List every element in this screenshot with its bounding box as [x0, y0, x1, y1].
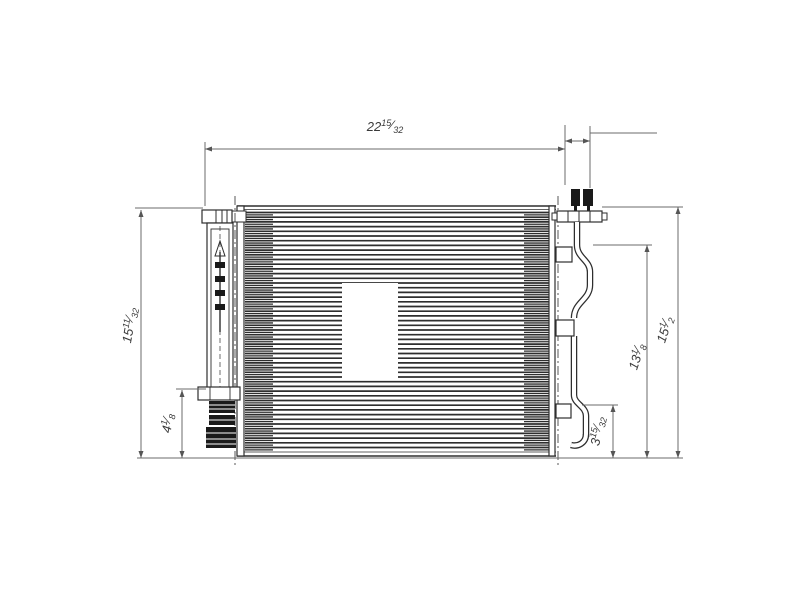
svg-text:315⁄32: 315⁄32: [586, 415, 609, 447]
dim-label-tube-height: 131⁄8: [625, 341, 649, 371]
core-right-end-plate: [549, 206, 555, 456]
svg-text:2215⁄32: 2215⁄32: [366, 118, 404, 135]
drier-bottom-fittings: [206, 401, 236, 448]
right-tube-assembly: [552, 189, 607, 446]
svg-text:1511⁄32: 1511⁄32: [118, 306, 141, 344]
drawing-canvas: 2215⁄32 1511⁄32 41⁄8 315⁄32 131⁄8 151⁄2: [0, 0, 800, 600]
svg-text:41⁄8: 41⁄8: [158, 412, 178, 434]
condenser-core: [230, 206, 556, 456]
svg-text:131⁄8: 131⁄8: [625, 341, 649, 371]
core-left-end-plate: [237, 206, 244, 456]
dim-label-tube-lower: 315⁄32: [586, 415, 609, 447]
dim-label-top-width: 2215⁄32: [366, 118, 404, 135]
port-fitting-1: [571, 189, 580, 206]
label-area: [342, 283, 398, 378]
svg-text:151⁄2: 151⁄2: [653, 314, 677, 344]
tube-clamp-middle: [556, 320, 574, 336]
tube-clamp-upper: [556, 247, 572, 262]
receiver-drier: [198, 210, 240, 448]
condenser-technical-drawing: 2215⁄32 1511⁄32 41⁄8 315⁄32 131⁄8 151⁄2: [0, 0, 800, 600]
port-fitting-2: [583, 189, 593, 206]
tube-clamp-lower: [556, 404, 571, 418]
dim-label-left-height: 1511⁄32: [118, 306, 141, 344]
dim-label-overall-height: 151⁄2: [653, 314, 677, 344]
dim-label-drier-height: 41⁄8: [158, 412, 178, 434]
